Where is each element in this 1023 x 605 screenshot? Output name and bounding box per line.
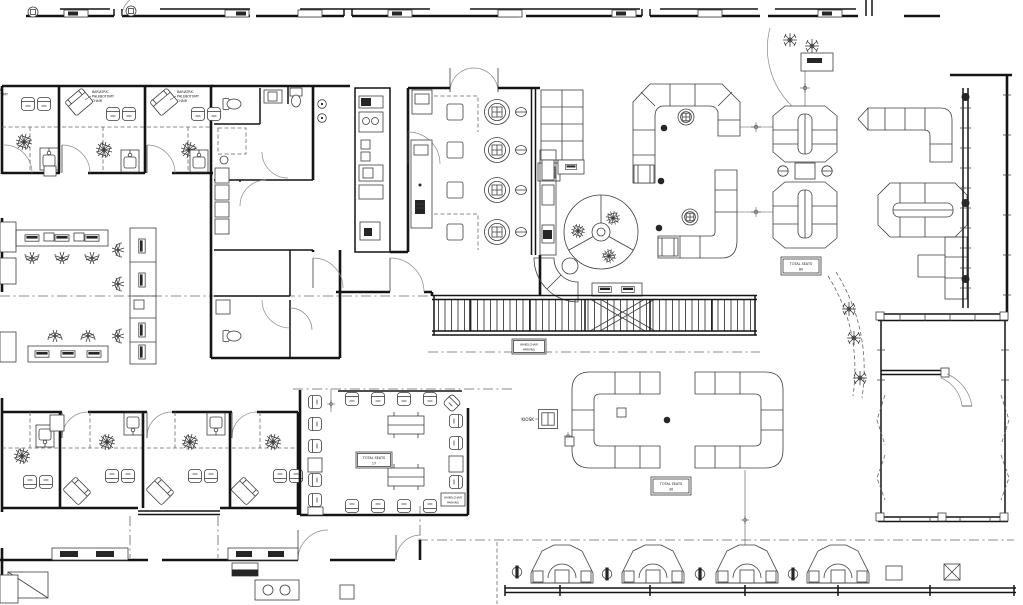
pedestal-icon xyxy=(695,568,705,581)
guest-chair-icon xyxy=(309,474,322,487)
monitor-icon xyxy=(139,345,145,359)
sink-cabinet-icon xyxy=(121,150,139,172)
draw-chair-icon xyxy=(96,142,112,158)
task-chair-icon xyxy=(48,330,62,342)
total-seats-tag-waiting: TOTAL SEATS 17 xyxy=(356,452,392,468)
task-chair-icon xyxy=(112,243,124,257)
guest-chair-icon xyxy=(192,108,205,121)
round-draw-station-icon xyxy=(485,138,510,163)
round-table xyxy=(562,258,578,274)
guest-chair-icon xyxy=(346,500,359,513)
planters-top-right xyxy=(767,28,833,106)
kiosk-label: KIOSK xyxy=(521,417,534,422)
guest-chair-icon xyxy=(372,393,385,406)
draw-chair-icon xyxy=(99,434,115,450)
sink-cabinet-icon xyxy=(190,150,208,172)
booth-pods-bottom xyxy=(505,545,1016,596)
planter-icon xyxy=(842,302,856,316)
side-table xyxy=(449,456,463,472)
guest-chair-icon xyxy=(40,476,53,489)
guest-chair-icon xyxy=(106,470,119,483)
phlebotomy-room xyxy=(63,413,142,505)
monitor-icon xyxy=(139,239,145,253)
waste-bin-icon xyxy=(664,417,671,424)
total-seats-tag-right: TOTAL SEATS 60 xyxy=(781,257,821,275)
callout-line: BARIATRIC xyxy=(92,90,110,94)
window-seating-right xyxy=(858,75,1012,318)
task-chair-icon xyxy=(55,252,69,264)
total-seats-label: TOTAL SEATS xyxy=(362,456,385,460)
guest-chair-icon xyxy=(24,476,37,489)
monitor-icon xyxy=(61,351,75,357)
bottom-wall-band xyxy=(0,530,421,603)
check-in-kiosk-icon xyxy=(539,410,558,429)
guest-chair-icon xyxy=(398,393,411,406)
parking-tag-line: PARKING xyxy=(523,348,535,352)
draw-chair-icon xyxy=(16,134,32,150)
total-seats-value: 60 xyxy=(799,268,803,272)
total-seats-value: 17 xyxy=(372,462,376,466)
waste-bin-icon xyxy=(661,125,668,132)
phlebotomy-room xyxy=(146,413,225,505)
section-marker-icon xyxy=(751,207,761,217)
floor-plan-canvas: BARIATRIC PHLEBOTOMY CHAIR BARIATRIC PHL… xyxy=(0,0,1023,605)
pedestal-icon xyxy=(512,566,522,579)
guest-chair-icon xyxy=(189,470,202,483)
toilet-icon xyxy=(223,99,241,110)
center-table xyxy=(388,412,424,438)
guest-chair-icon xyxy=(205,470,218,483)
section-marker-icon xyxy=(751,122,761,132)
monitor-icon xyxy=(55,235,69,241)
recliner-icon xyxy=(63,477,91,505)
task-chair-icon xyxy=(112,277,124,291)
callout-line: CHAIR xyxy=(92,99,103,103)
waste-bin-icon xyxy=(656,225,663,232)
restroom-core xyxy=(211,86,350,358)
section-marker-icon xyxy=(327,400,335,408)
monitor-icon xyxy=(35,351,49,357)
total-seats-label: TOTAL SEATS xyxy=(659,482,682,486)
monitor-icon xyxy=(87,351,101,357)
monitor-icon xyxy=(85,235,99,241)
waiting-room-small: TOTAL SEATS 17 WHEELCHAIR PARKING xyxy=(300,389,468,515)
parking-tag-line: WHEELCHAIR xyxy=(444,496,462,500)
total-seats-label: TOTAL SEATS xyxy=(789,262,812,266)
monitor-icon xyxy=(139,273,145,287)
draw-station xyxy=(447,100,527,125)
phlebotomy-rooms-top-left: BARIATRIC PHLEBOTOMY CHAIR BARIATRIC PHL… xyxy=(0,86,221,296)
stool-icon xyxy=(822,166,832,176)
draw-chair-icon xyxy=(182,434,198,450)
callout-line: CHAIR xyxy=(177,99,188,103)
window-wall xyxy=(960,88,971,308)
draw-station xyxy=(447,138,527,163)
guest-chair-icon xyxy=(424,393,437,406)
booth-pod-icon xyxy=(807,545,869,583)
draw-chair-icon xyxy=(265,434,281,450)
circular-checkin-desk xyxy=(564,195,638,269)
side-table xyxy=(308,458,322,472)
guest-chair-icon xyxy=(208,108,221,121)
monitor-icon xyxy=(139,323,145,337)
planters-mid-right xyxy=(828,272,867,398)
sink-cabinet-icon xyxy=(207,413,225,435)
checkin-hub xyxy=(534,150,642,302)
round-draw-station-icon xyxy=(485,220,510,245)
monitor-icon xyxy=(599,287,612,293)
section-marker-icon xyxy=(741,516,749,524)
structural-column-icon xyxy=(678,109,694,125)
recliner-icon xyxy=(146,477,174,505)
section-marker-icon xyxy=(800,83,810,93)
callout-line: PHLEBOTOMY xyxy=(92,95,114,99)
total-seats-value: 30 xyxy=(669,488,673,492)
recliner-icon xyxy=(65,88,93,116)
end-table-icon xyxy=(634,165,654,183)
round-draw-station-icon xyxy=(485,178,510,203)
lavatory-icon xyxy=(318,100,327,109)
planter-icon xyxy=(783,33,797,47)
booth-pod-icon xyxy=(716,545,778,583)
task-chair-icon xyxy=(112,329,124,343)
center-table xyxy=(388,464,424,490)
task-chair-icon xyxy=(85,252,99,264)
parking-tag: WHEELCHAIR PARKING xyxy=(512,339,546,354)
draw-station xyxy=(447,220,527,245)
recliner-icon xyxy=(150,88,178,116)
guest-chair-icon xyxy=(22,98,35,111)
guest-chair-icon xyxy=(38,98,51,111)
sink-cabinet-icon xyxy=(124,413,142,435)
guest-chair-icon xyxy=(398,500,411,513)
guest-chair-icon xyxy=(309,418,322,431)
center-lounge-upper xyxy=(633,84,773,258)
center-lounge-lower: TOTAL SEATS 30 xyxy=(565,372,783,558)
phlebotomy-room xyxy=(14,415,64,489)
planter-icon xyxy=(847,331,861,345)
guest-chair-icon xyxy=(424,500,437,513)
task-chair-icon xyxy=(25,252,39,264)
guest-chair-icon xyxy=(274,470,287,483)
end-table-icon xyxy=(658,238,678,256)
draw-chair-icon xyxy=(600,247,619,266)
parking-tag-line: WHEELCHAIR xyxy=(520,343,538,347)
pedestal-icon xyxy=(788,568,798,581)
total-seats-tag-center: TOTAL SEATS 30 xyxy=(651,477,691,495)
lavatory-icon xyxy=(318,114,327,123)
banquette-islands-right: TOTAL SEATS 60 xyxy=(773,60,837,275)
monitor-icon xyxy=(622,287,635,293)
side-table xyxy=(795,163,815,179)
guest-chair-icon xyxy=(107,108,120,121)
draw-chair-icon xyxy=(571,224,585,238)
stool-icon xyxy=(778,166,788,176)
phlebotomy-room xyxy=(16,98,58,177)
round-draw-station-icon xyxy=(485,100,510,125)
waste-bin-icon xyxy=(658,178,665,185)
guest-chair-icon xyxy=(122,470,135,483)
booth-pod-icon xyxy=(622,545,684,583)
guest-chair-icon xyxy=(450,415,463,428)
kiosk: KIOSK xyxy=(521,410,572,441)
callout-line: PHLEBOTOMY xyxy=(0,93,8,97)
planter-icon xyxy=(805,39,819,53)
draw-stations-center xyxy=(408,68,583,255)
guest-chair-icon xyxy=(123,108,136,121)
guest-chair-icon xyxy=(450,437,463,450)
draw-chair-icon xyxy=(14,448,30,464)
toilet-icon xyxy=(223,331,241,342)
monitor-icon xyxy=(565,164,576,169)
phlebotomy-room xyxy=(231,434,303,505)
parking-tag-line: PARKING xyxy=(447,501,459,505)
recliner-icon xyxy=(231,477,259,505)
guest-chair-icon xyxy=(309,494,322,507)
task-chair-icon xyxy=(81,330,95,342)
floor-plan-drawing: BARIATRIC PHLEBOTOMY CHAIR BARIATRIC PHL… xyxy=(0,0,1023,605)
structural-column-icon xyxy=(682,209,698,225)
conference-room-bottom-right xyxy=(876,312,1009,522)
guest-chair-icon xyxy=(346,393,359,406)
guest-chair-icon xyxy=(450,476,463,489)
guest-chair-icon xyxy=(309,396,322,409)
walkway-bridge: WHEELCHAIR PARKING xyxy=(432,295,757,354)
pedestal-icon xyxy=(602,568,612,581)
planter-icon xyxy=(853,371,867,385)
callout-line: PHLEBOTOMY xyxy=(177,95,199,99)
phlebotomy-rooms-bottom-left xyxy=(2,412,303,515)
draw-station xyxy=(447,178,527,203)
callout-line: BARIATRIC xyxy=(177,90,195,94)
booth-pod-icon xyxy=(531,545,593,583)
guest-chair-icon xyxy=(309,440,322,453)
guest-chair-icon xyxy=(443,394,461,412)
guest-chair-icon xyxy=(372,500,385,513)
workstation-area-left xyxy=(0,218,156,600)
parking-tag: WHEELCHAIR PARKING xyxy=(441,493,465,506)
monitor-icon xyxy=(25,235,39,241)
top-wall-band xyxy=(26,0,940,17)
